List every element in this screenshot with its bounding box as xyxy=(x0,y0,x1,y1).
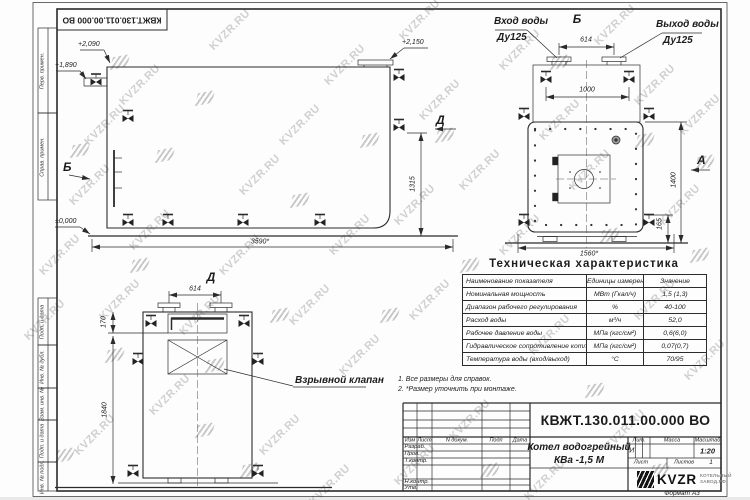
sheet-label: Лист xyxy=(634,460,648,466)
col-list: Лист xyxy=(417,438,431,444)
col-podp: Подп xyxy=(489,438,502,444)
product-name-line2: КВа -1,5 М xyxy=(554,456,604,466)
left-stamp-sprav: Справ. примен. xyxy=(40,137,46,177)
kvzr-logo-sub2: ЗАВОД.РФ xyxy=(700,480,726,485)
dim-614-section: 614 xyxy=(189,286,201,293)
spec-cell: 40-100 xyxy=(644,301,707,314)
spec-cell: Расход воды xyxy=(463,314,587,327)
kvzr-logo-sub1: КОТЕЛЬНЫЙ xyxy=(700,474,732,479)
spec-cell: м³/ч xyxy=(587,314,644,327)
elevation-1890: +1,890 xyxy=(55,62,77,69)
left-stamp-podp1: Подп. и дата xyxy=(40,304,46,338)
sheets-value: 1 xyxy=(709,460,713,467)
spec-table-grid: Наименование показателя Единицы измерени… xyxy=(462,274,707,366)
dim-1400: 1400 xyxy=(671,172,678,188)
spec-row: Температура воды (вход/выход)°С70/95 xyxy=(463,353,707,366)
spec-cell: °С xyxy=(587,353,644,366)
spec-header-value: Значение xyxy=(644,275,707,288)
spec-row: Гидравлическое сопротивление котлаМПа (к… xyxy=(463,340,707,353)
titleblock-doc-number: КВЖТ.130.011.00.000 ВО xyxy=(541,413,711,427)
spec-cell: МПа (кгс/см²) xyxy=(587,327,644,340)
spec-row: Рабочее давление водыМПа (кгс/см²)0,6(6,… xyxy=(463,327,707,340)
col-izm: Изм xyxy=(405,438,415,444)
kvzr-logo-text: KVZR xyxy=(657,473,697,487)
lit-header: Лит. xyxy=(633,438,646,444)
elevation-zero: ±0,000 xyxy=(55,218,76,225)
row-utv: Утв. xyxy=(405,486,418,492)
scale-header: Масштаб xyxy=(695,438,721,444)
dim-1840: 1840 xyxy=(102,402,109,418)
dim-165: 165 xyxy=(657,218,664,230)
elevation-2090: +2,090 xyxy=(78,41,100,48)
dim-614-front: 614 xyxy=(580,37,592,44)
inlet-callout-line1: Вход воды xyxy=(494,17,548,27)
left-stamp-vzam: Взам. инв. № xyxy=(40,387,46,421)
spec-header-name: Наименование показателя xyxy=(463,275,587,288)
spec-cell: Гидравлическое сопротивление котла xyxy=(463,340,587,353)
spec-header-units: Единицы измерения xyxy=(587,275,644,288)
spec-cell: Номинальная мощность xyxy=(463,288,587,301)
inlet-callout-line2: Ду125 xyxy=(497,33,527,43)
sheets-label: Листов xyxy=(674,460,694,466)
product-name-line1: Котел водогрейный xyxy=(527,443,630,453)
note-line-2: 2. *Размер уточнить при монтаже. xyxy=(398,386,517,393)
spec-table-body: Номинальная мощностьМВт (Гкал/ч)1,5 (1,3… xyxy=(463,288,707,366)
spec-row: Номинальная мощностьМВт (Гкал/ч)1,5 (1,3… xyxy=(463,288,707,301)
spec-cell: Рабочее давление воды xyxy=(463,327,587,340)
dim-170: 170 xyxy=(101,316,108,328)
elevation-2150: +2,150 xyxy=(402,39,424,46)
drawing-stage: KVZR.RUKVZR.RUKVZR.RUKVZR.RUKVZR.RUKVZR.… xyxy=(0,0,750,500)
section-view-title: Д xyxy=(207,271,216,283)
left-stamp-inv-podl: Инв. № подл. xyxy=(40,459,46,493)
row-prov: Пров. xyxy=(405,452,420,458)
spec-cell: МВт (Гкал/ч) xyxy=(587,288,644,301)
dim-1000: 1000 xyxy=(579,87,595,94)
col-docnum: N докум. xyxy=(446,438,468,444)
view-arrow-a-label: А xyxy=(697,154,706,166)
view-arrow-d-label: Д xyxy=(436,114,445,126)
spec-header-row: Наименование показателя Единицы измерени… xyxy=(463,275,707,288)
outlet-callout-line2: Ду125 xyxy=(663,36,693,46)
front-view-title: Б xyxy=(573,13,582,25)
spec-cell: 0,6(6,0) xyxy=(644,327,707,340)
side-view-linework xyxy=(84,60,458,236)
spec-cell: % xyxy=(587,301,644,314)
spec-table: Техническая характеристика Наименование … xyxy=(462,258,706,366)
explosion-valve-callout: Взрывной клапан xyxy=(295,376,384,386)
col-data: Дата xyxy=(513,438,528,444)
row-razrab: Разраб. xyxy=(405,445,426,451)
spec-cell: 52,0 xyxy=(644,314,707,327)
lit-value: И xyxy=(629,448,634,455)
dim-1560: 1560* xyxy=(580,251,598,258)
dim-3590: 3590* xyxy=(251,239,269,246)
section-view-linework xyxy=(55,303,332,488)
left-stamp-perv: Перв. примен. xyxy=(40,52,46,89)
spec-cell: Диапазон рабочего регулирования xyxy=(463,301,587,314)
spec-cell: МПа (кгс/см²) xyxy=(587,340,644,353)
scale-value: 1:20 xyxy=(700,447,715,455)
spec-table-title: Техническая характеристика xyxy=(462,258,706,270)
left-stamp-inv-dubl: Инв. № дубл. xyxy=(40,350,46,384)
format-note: Формат А3 xyxy=(664,491,700,498)
kvzr-logo-icon xyxy=(637,471,654,488)
note-line-1: 1. Все размеры для справок. xyxy=(398,376,492,383)
left-stamp-podp2: Подп. и дата xyxy=(40,424,46,458)
spec-cell: 70/95 xyxy=(644,353,707,366)
spec-cell: Температура воды (вход/выход) xyxy=(463,353,587,366)
spec-cell: 1,5 (1,3) xyxy=(644,288,707,301)
view-arrow-b-label: Б xyxy=(63,161,72,173)
row-tkontr: Т.контр. xyxy=(405,459,428,465)
corner-stamp: КВЖТ.130.011.00.000 ВО xyxy=(62,15,161,24)
mass-header: Масса xyxy=(664,438,680,444)
spec-cell: 0,07(0,7) xyxy=(644,340,707,353)
spec-row: Расход водым³/ч52,0 xyxy=(463,314,707,327)
dim-1315: 1315 xyxy=(410,176,417,192)
outlet-callout-line1: Выход воды xyxy=(656,20,719,30)
spec-row: Диапазон рабочего регулирования%40-100 xyxy=(463,301,707,314)
